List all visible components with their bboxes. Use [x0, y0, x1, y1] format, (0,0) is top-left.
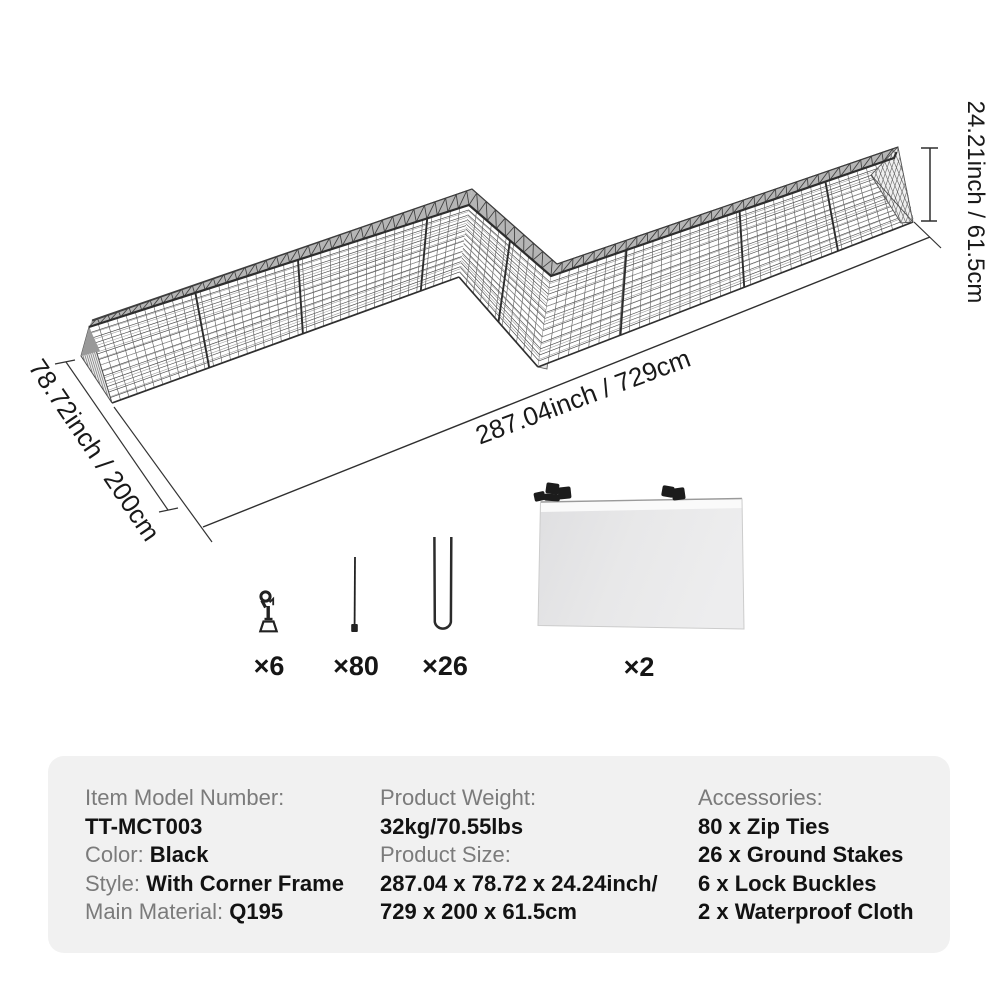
- svg-text:×80: ×80: [333, 651, 379, 681]
- svg-text:24.21inch / 61.5cm: 24.21inch / 61.5cm: [962, 101, 989, 304]
- svg-text:287.04inch / 729cm: 287.04inch / 729cm: [471, 343, 694, 451]
- svg-text:×26: ×26: [422, 651, 468, 681]
- svg-text:×6: ×6: [254, 651, 285, 681]
- svg-text:×2: ×2: [624, 652, 655, 682]
